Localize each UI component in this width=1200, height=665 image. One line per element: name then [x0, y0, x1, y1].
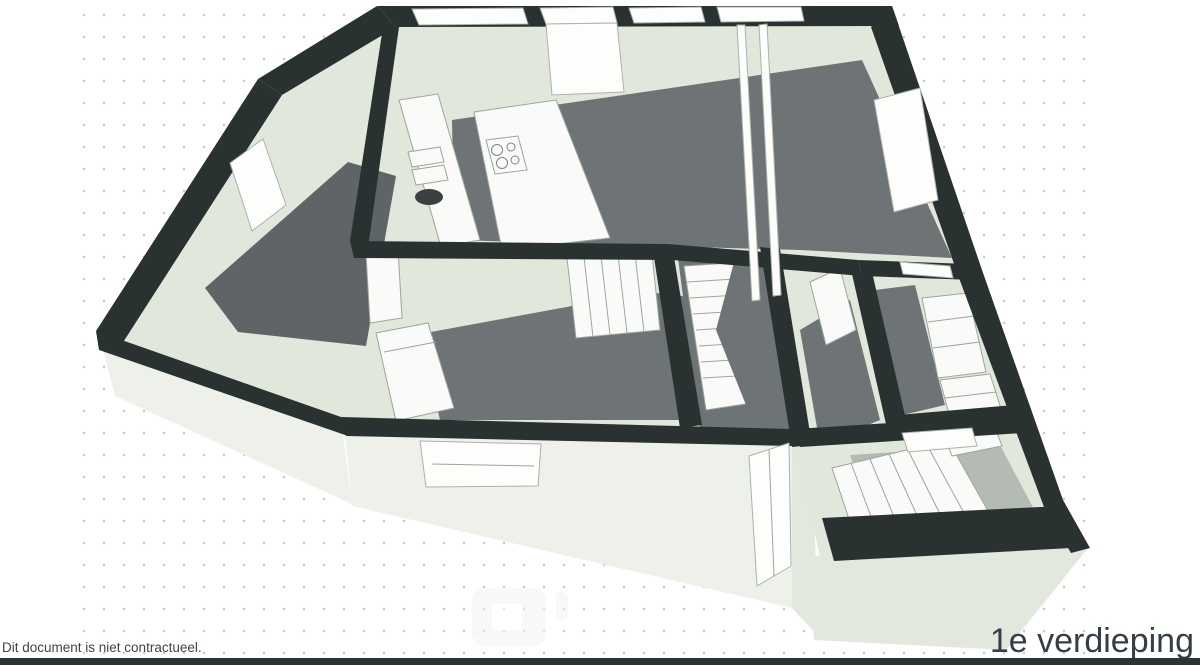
- wall-mid-horizontal: [350, 241, 672, 260]
- window-top-4: [717, 7, 804, 22]
- floorplan-canvas-3d[interactable]: [0, 0, 1200, 665]
- watermark-b-counter: [492, 604, 522, 630]
- kitchen-sink-drain: [415, 189, 443, 205]
- floor-title: 1e verdieping: [990, 624, 1194, 658]
- floorplan-viewer: Dit document is niet contractueel. 1e ve…: [0, 0, 1200, 665]
- watermark-logo: [472, 588, 568, 646]
- bottom-bar: [0, 658, 1200, 665]
- window-top-2: [540, 7, 617, 24]
- window-bay-middle: [546, 23, 624, 95]
- bedroom-cabinet: [366, 249, 402, 323]
- wardrobe-sliding-doors: [567, 254, 660, 338]
- window-top-3: [629, 7, 705, 23]
- watermark-apostrophe: [556, 592, 568, 620]
- window-top-1: [412, 8, 528, 25]
- disclaimer-text: Dit document is niet contractueel.: [2, 640, 202, 656]
- main-front-face: [344, 420, 792, 608]
